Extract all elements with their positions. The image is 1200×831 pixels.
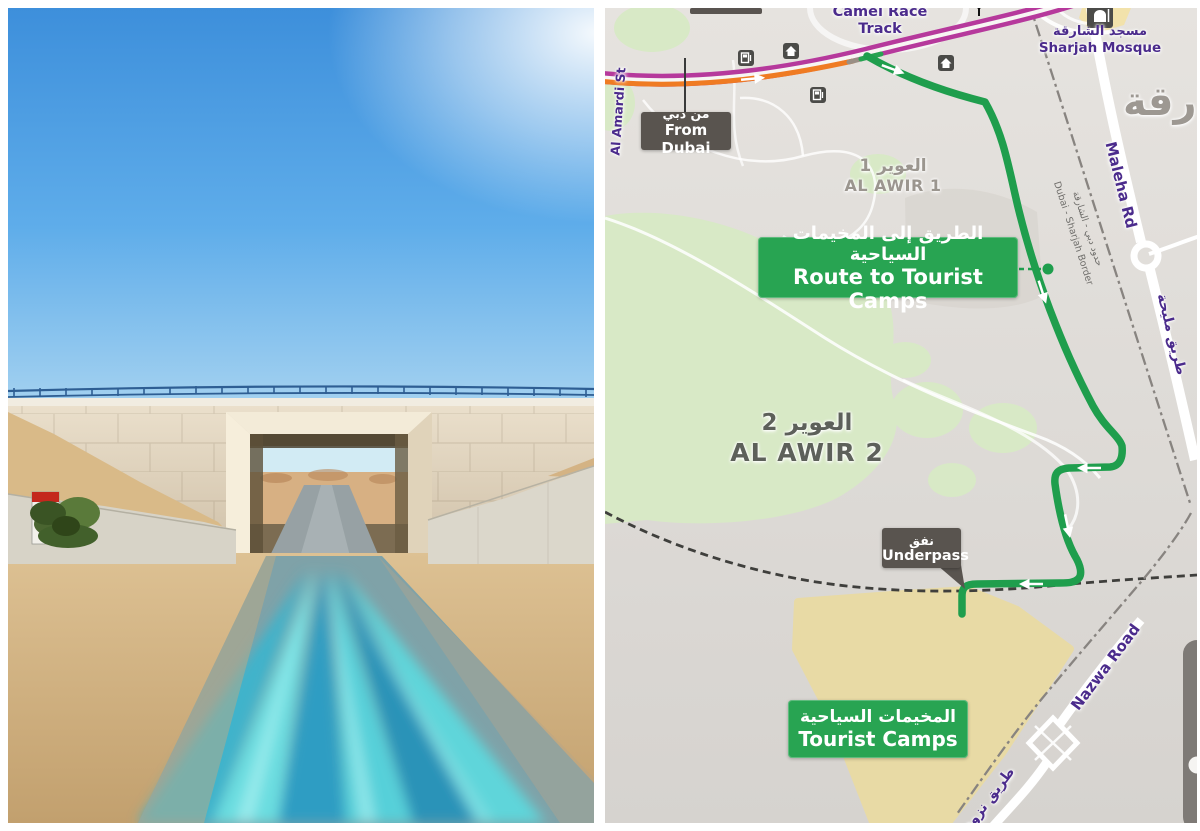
al-awir-1-label: العوير 1 AL AWIR 1 <box>818 156 968 196</box>
sharjah-city-label-partial: ارقة <box>1123 78 1197 126</box>
al-awir-1-label-en: AL AWIR 1 <box>818 176 968 195</box>
al-awir-1-label-ar: العوير 1 <box>818 156 968 176</box>
tourist-camps-callout-ar: المخيمات السياحية <box>788 707 968 727</box>
route-to-camps-callout: الطريق إلى المخيمات السياحية Route to To… <box>758 237 1018 298</box>
al-awir-2-label-en: AL AWIR 2 <box>707 438 907 468</box>
house-icon <box>938 55 954 71</box>
fuel-station-icon <box>810 87 826 103</box>
sky <box>8 8 594 408</box>
route-map-panel: Camel Race Track مسجد الشارقة Sharjah Mo… <box>605 8 1197 823</box>
al-awir-2-label-ar: العوير 2 <box>707 410 907 438</box>
road-photo-panel <box>8 8 594 823</box>
al-awir-2-label: العوير 2 AL AWIR 2 <box>707 410 907 468</box>
house-icon <box>783 43 799 59</box>
camel-race-track-label: Camel Race Track <box>825 8 935 39</box>
underpass-portal <box>226 412 432 564</box>
route-to-camps-callout-ar: الطريق إلى المخيمات السياحية <box>758 223 1018 265</box>
tourist-camps-callout: المخيمات السياحية Tourist Camps <box>788 700 968 758</box>
from-dubai-label: من دبي From Dubai <box>641 112 731 150</box>
video-frame: Camel Race Track مسجد الشارقة Sharjah Mo… <box>0 0 1200 831</box>
fuel-station-icon <box>738 50 754 66</box>
cropped-label-sliver <box>690 8 762 14</box>
from-dubai-label-en: From Dubai <box>641 121 731 157</box>
sharjah-mosque-label: مسجد الشارقة Sharjah Mosque <box>1025 24 1175 56</box>
road-photo <box>8 8 594 823</box>
underpass-label: نفق Underpass <box>882 528 961 568</box>
underpass-label-ar: نفق <box>882 533 961 548</box>
route-to-camps-callout-en: Route to Tourist Camps <box>758 265 1018 313</box>
tourist-camps-callout-en: Tourist Camps <box>788 727 968 751</box>
sharjah-mosque-label-en: Sharjah Mosque <box>1025 40 1175 56</box>
desert-bush <box>30 497 100 548</box>
corner-overlay-shape <box>1183 640 1197 823</box>
sharjah-mosque-label-ar: مسجد الشارقة <box>1025 24 1175 40</box>
from-dubai-label-ar: من دبي <box>641 106 731 121</box>
underpass-label-en: Underpass <box>882 548 961 564</box>
